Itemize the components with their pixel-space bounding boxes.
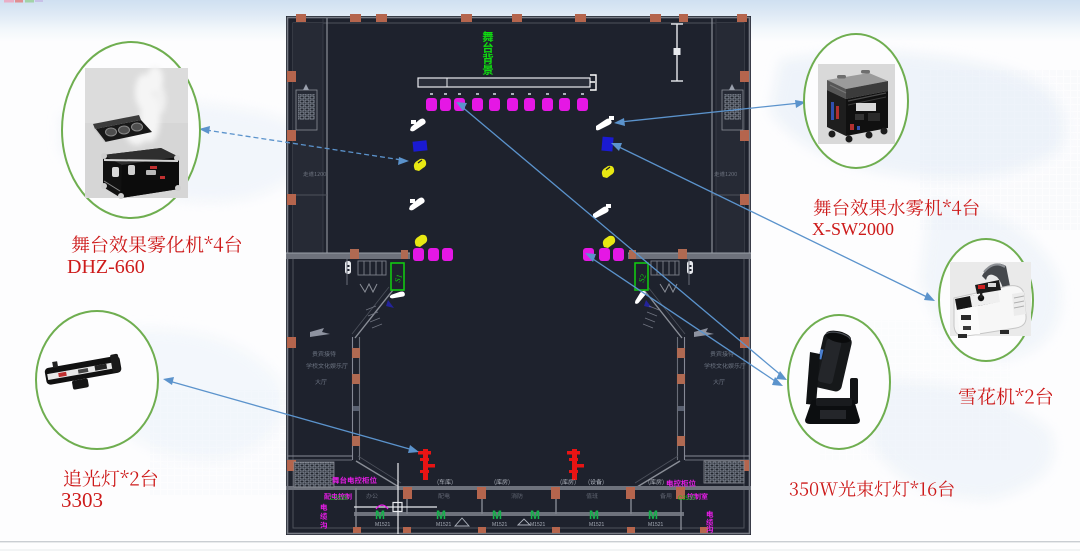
svg-text:M1521: M1521 (530, 522, 546, 528)
svg-text:M1521: M1521 (375, 522, 391, 528)
svg-text:M: M (530, 508, 540, 522)
svg-text:C2535: C2535 (678, 496, 696, 502)
svg-text:M1521: M1521 (648, 522, 664, 528)
svg-text:M1521: M1521 (589, 522, 605, 528)
svg-text:M: M (492, 508, 502, 522)
svg-text:M: M (375, 508, 385, 522)
svg-text:M: M (589, 508, 599, 522)
svg-text:M1521: M1521 (492, 522, 508, 528)
svg-text:M1521: M1521 (436, 522, 452, 528)
svg-text:C2535: C2535 (330, 496, 348, 502)
svg-text:M: M (648, 508, 658, 522)
svg-text:M: M (436, 508, 446, 522)
